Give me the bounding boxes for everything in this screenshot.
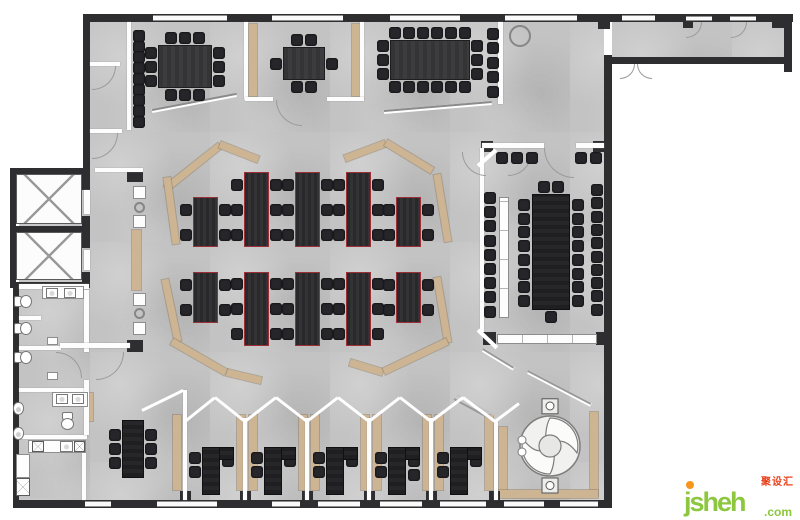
chair — [165, 32, 177, 44]
partition-wall — [327, 97, 364, 101]
chair — [313, 466, 325, 478]
plant-icon — [509, 25, 531, 47]
sink-icon — [64, 288, 76, 298]
window — [504, 501, 544, 507]
partition-wall — [84, 190, 90, 214]
chair — [422, 204, 434, 216]
chair — [145, 47, 157, 59]
chair — [189, 452, 201, 464]
chair — [487, 57, 499, 69]
chair — [437, 452, 449, 464]
chair — [133, 73, 145, 85]
chair — [383, 304, 395, 316]
door-swing-icon — [637, 64, 652, 79]
chair — [377, 68, 389, 80]
chair — [282, 278, 294, 290]
chair — [231, 204, 243, 216]
wall-segment — [611, 57, 785, 64]
cabinet — [16, 454, 30, 478]
chair — [518, 240, 530, 252]
chair — [552, 181, 564, 193]
chair — [377, 40, 389, 52]
chair — [193, 32, 205, 44]
partition-wall — [244, 22, 248, 100]
window — [272, 15, 343, 21]
team-table-southwest — [122, 420, 144, 478]
partition-wall — [82, 452, 86, 500]
partition-wall — [360, 22, 364, 100]
cooktop-icon — [32, 441, 44, 452]
chair — [375, 452, 387, 464]
chair — [459, 81, 471, 93]
partition-accent — [249, 24, 257, 96]
chair — [180, 204, 192, 216]
partition-accent — [173, 415, 181, 490]
chair — [270, 179, 282, 191]
chair — [403, 27, 415, 39]
chair — [484, 249, 496, 261]
window — [686, 16, 712, 21]
window — [622, 15, 655, 21]
partition-wall — [494, 420, 498, 500]
chair — [591, 304, 603, 316]
meeting-table-small — [283, 47, 325, 80]
partition-wall — [60, 343, 130, 348]
chair — [231, 328, 243, 340]
chair — [518, 268, 530, 280]
copier — [133, 215, 146, 228]
chair — [291, 34, 303, 46]
chair — [193, 89, 205, 101]
partition-wall — [127, 22, 131, 130]
open-office-desk — [244, 172, 269, 247]
chair — [251, 466, 263, 478]
chair — [518, 226, 530, 238]
chair — [231, 229, 243, 241]
chair — [471, 40, 483, 52]
window — [380, 501, 422, 507]
chair — [487, 42, 499, 54]
watermark-tld: .com — [764, 506, 792, 518]
chair — [372, 179, 384, 191]
chair — [459, 27, 471, 39]
office-desk — [450, 447, 468, 495]
open-office-desk — [244, 272, 269, 346]
window — [730, 16, 756, 21]
partition-wall — [243, 418, 247, 500]
chair — [408, 469, 420, 481]
chair — [545, 311, 557, 323]
chair — [180, 229, 192, 241]
chair — [389, 27, 401, 39]
appliance-icon — [74, 441, 85, 452]
chair — [109, 429, 121, 441]
chair — [321, 229, 333, 241]
watermark-cjk: 聚设汇 — [761, 478, 794, 488]
chair — [422, 279, 434, 291]
chair — [422, 229, 434, 241]
chair — [417, 81, 429, 93]
copier — [133, 293, 146, 306]
partition-wall — [84, 250, 90, 270]
chair — [231, 303, 243, 315]
chair — [219, 279, 231, 291]
partition-wall — [245, 97, 273, 101]
chair — [333, 229, 345, 241]
chair — [305, 34, 317, 46]
chair — [321, 303, 333, 315]
chair — [471, 68, 483, 80]
fixture — [47, 372, 58, 380]
chair — [484, 235, 496, 247]
chair — [518, 213, 530, 225]
chair — [591, 237, 603, 249]
chair — [133, 116, 145, 128]
chair — [484, 220, 496, 232]
chair — [313, 452, 325, 464]
chair — [591, 224, 603, 236]
chair — [383, 279, 395, 291]
chair — [518, 254, 530, 266]
fixture — [47, 337, 58, 345]
chair — [389, 81, 401, 93]
partition-accent — [485, 415, 493, 490]
chair — [496, 152, 508, 164]
partition-wall — [576, 143, 604, 148]
chair — [333, 303, 345, 315]
chair — [487, 86, 499, 98]
wall-segment — [82, 216, 90, 248]
wall-segment — [82, 168, 90, 190]
chair — [145, 443, 157, 455]
window — [440, 501, 486, 507]
chair — [572, 295, 584, 307]
open-office-desk — [193, 197, 218, 247]
window — [85, 501, 111, 507]
chair — [179, 89, 191, 101]
chair — [575, 152, 587, 164]
toilet-icon — [14, 350, 31, 363]
chair — [165, 89, 177, 101]
partition-wall — [482, 143, 544, 148]
appliance-icon — [16, 478, 30, 496]
chair — [219, 204, 231, 216]
chair — [422, 304, 434, 316]
chair — [431, 27, 443, 39]
waste-bin-icon — [134, 202, 145, 213]
chair — [270, 328, 282, 340]
chair — [213, 61, 225, 73]
chair — [282, 179, 294, 191]
chair — [590, 152, 602, 164]
chair — [145, 75, 157, 87]
partition-wall — [429, 418, 433, 500]
chair — [487, 28, 499, 40]
partition-wall — [19, 316, 41, 320]
copier — [133, 322, 146, 335]
meeting-table-west — [158, 45, 212, 88]
elevator-icon — [16, 174, 82, 224]
window — [505, 15, 577, 21]
kitchen-sink-icon — [60, 441, 73, 452]
partition-wall — [95, 168, 143, 172]
chair — [383, 204, 395, 216]
open-office-desk — [295, 272, 320, 346]
chair — [591, 184, 603, 196]
window — [390, 15, 460, 21]
office-floor-plan: jsheh 聚设汇 .com — [0, 0, 800, 520]
chair — [572, 240, 584, 252]
open-office-desk — [346, 272, 371, 346]
window — [318, 501, 360, 507]
chair — [445, 81, 457, 93]
sideboard — [499, 197, 509, 318]
chair — [375, 466, 387, 478]
chair — [431, 81, 443, 93]
chair — [270, 229, 282, 241]
chair — [326, 58, 338, 70]
wall-segment — [772, 22, 784, 28]
meeting-table-north — [390, 40, 470, 80]
chair — [180, 304, 192, 316]
chair — [291, 81, 303, 93]
chair — [572, 281, 584, 293]
chair — [145, 61, 157, 73]
chair — [518, 199, 530, 211]
chair — [333, 328, 345, 340]
office-desk — [264, 447, 282, 495]
chair — [333, 278, 345, 290]
chair — [572, 213, 584, 225]
partition-wall — [183, 390, 187, 500]
boardroom-table — [532, 194, 570, 310]
chair — [282, 328, 294, 340]
chair — [572, 226, 584, 238]
chair — [333, 179, 345, 191]
chair — [417, 27, 429, 39]
chair — [189, 466, 201, 478]
sink-icon — [56, 394, 68, 404]
partition-wall — [305, 418, 309, 500]
partition-wall — [19, 435, 87, 439]
chair — [484, 306, 496, 318]
chair — [484, 291, 496, 303]
wall-segment — [598, 22, 610, 29]
chair — [591, 251, 603, 263]
chair — [270, 303, 282, 315]
chair — [305, 81, 317, 93]
chair — [180, 279, 192, 291]
chair — [282, 204, 294, 216]
sideboard — [497, 334, 597, 344]
chair — [219, 304, 231, 316]
chair — [321, 278, 333, 290]
chair — [484, 192, 496, 204]
chair — [484, 277, 496, 289]
sink-icon — [46, 288, 58, 298]
watermark-dot-icon — [686, 481, 694, 489]
open-office-desk — [193, 272, 218, 323]
chair — [591, 211, 603, 223]
chair — [321, 204, 333, 216]
chair — [282, 229, 294, 241]
office-desk — [388, 447, 406, 495]
chair — [321, 328, 333, 340]
sink-icon — [72, 394, 84, 404]
window — [272, 501, 300, 507]
round-lounge-sofa-icon — [506, 398, 594, 494]
chair — [437, 466, 449, 478]
chair — [145, 429, 157, 441]
chair — [511, 152, 523, 164]
chair — [231, 179, 243, 191]
chair — [270, 204, 282, 216]
chair — [383, 229, 395, 241]
open-office-desk — [396, 272, 421, 323]
toilet-icon — [62, 412, 75, 429]
chair — [270, 58, 282, 70]
chair — [109, 457, 121, 469]
chair — [487, 71, 499, 83]
chair — [321, 179, 333, 191]
chair — [591, 290, 603, 302]
chair — [471, 54, 483, 66]
chair — [484, 263, 496, 275]
chair — [179, 32, 191, 44]
chair — [591, 277, 603, 289]
chair — [270, 278, 282, 290]
chair — [219, 229, 231, 241]
door-swing-icon — [620, 64, 635, 79]
office-desk — [326, 447, 344, 495]
waste-bin-icon — [134, 308, 145, 319]
watermark-logo[interactable]: jsheh 聚设汇 .com — [684, 478, 794, 516]
chair — [109, 443, 121, 455]
chair — [591, 264, 603, 276]
chair — [591, 197, 603, 209]
chair — [372, 328, 384, 340]
wall-segment — [596, 332, 610, 345]
window — [153, 15, 227, 21]
open-office-desk — [346, 172, 371, 247]
window — [560, 501, 598, 507]
chair — [572, 199, 584, 211]
partition-wall — [84, 380, 89, 435]
open-office-desk — [396, 197, 421, 247]
chair — [538, 181, 550, 193]
chair — [572, 268, 584, 280]
chair — [213, 47, 225, 59]
watermark-brand: jsheh — [684, 489, 745, 516]
partition-accent — [132, 230, 141, 290]
chair — [282, 303, 294, 315]
chair — [572, 254, 584, 266]
chair — [145, 457, 157, 469]
chair — [518, 281, 530, 293]
copier — [133, 186, 146, 199]
partition-wall — [367, 418, 371, 500]
chair — [526, 152, 538, 164]
chair — [403, 81, 415, 93]
chair — [445, 27, 457, 39]
toilet-icon — [14, 294, 31, 307]
urinal-icon — [13, 402, 24, 415]
chair — [518, 295, 530, 307]
chair — [484, 206, 496, 218]
partition-accent — [352, 24, 360, 96]
urinal-icon — [13, 427, 24, 440]
wall-segment — [784, 14, 792, 72]
office-desk — [202, 447, 220, 495]
chair — [213, 75, 225, 87]
toilet-icon — [14, 321, 31, 334]
chair — [377, 54, 389, 66]
chair — [333, 204, 345, 216]
wall-segment — [604, 55, 612, 508]
wall-segment — [83, 14, 90, 172]
open-office-desk — [295, 172, 320, 247]
window — [157, 501, 217, 507]
elevator-icon — [16, 232, 82, 280]
chair — [251, 452, 263, 464]
chair — [231, 278, 243, 290]
